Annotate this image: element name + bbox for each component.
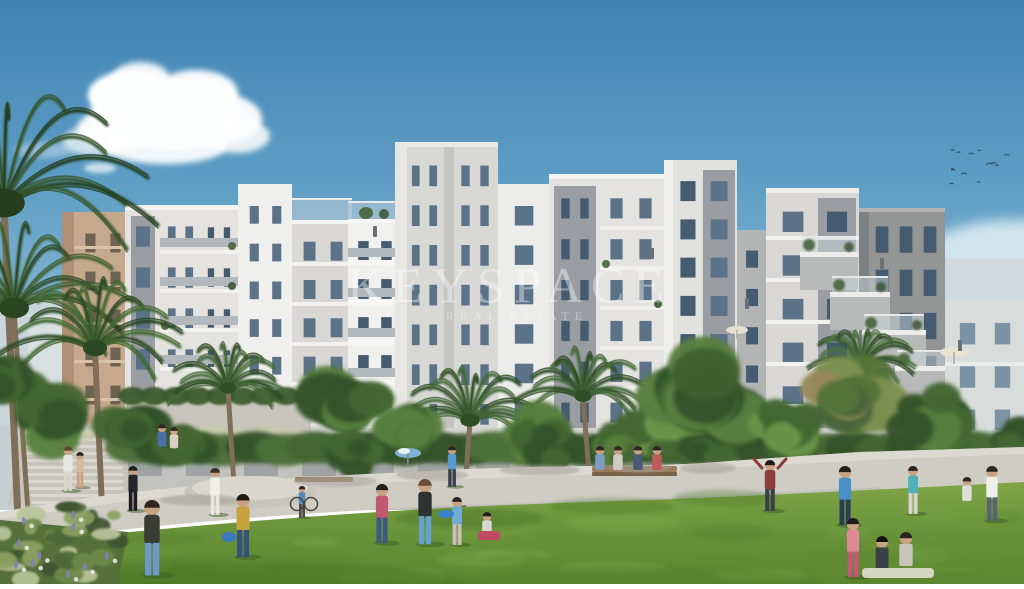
svg-text:REAL ESTATE: REAL ESTATE	[446, 309, 588, 323]
svg-text:KEYSPACE: KEYSPACE	[347, 257, 673, 313]
